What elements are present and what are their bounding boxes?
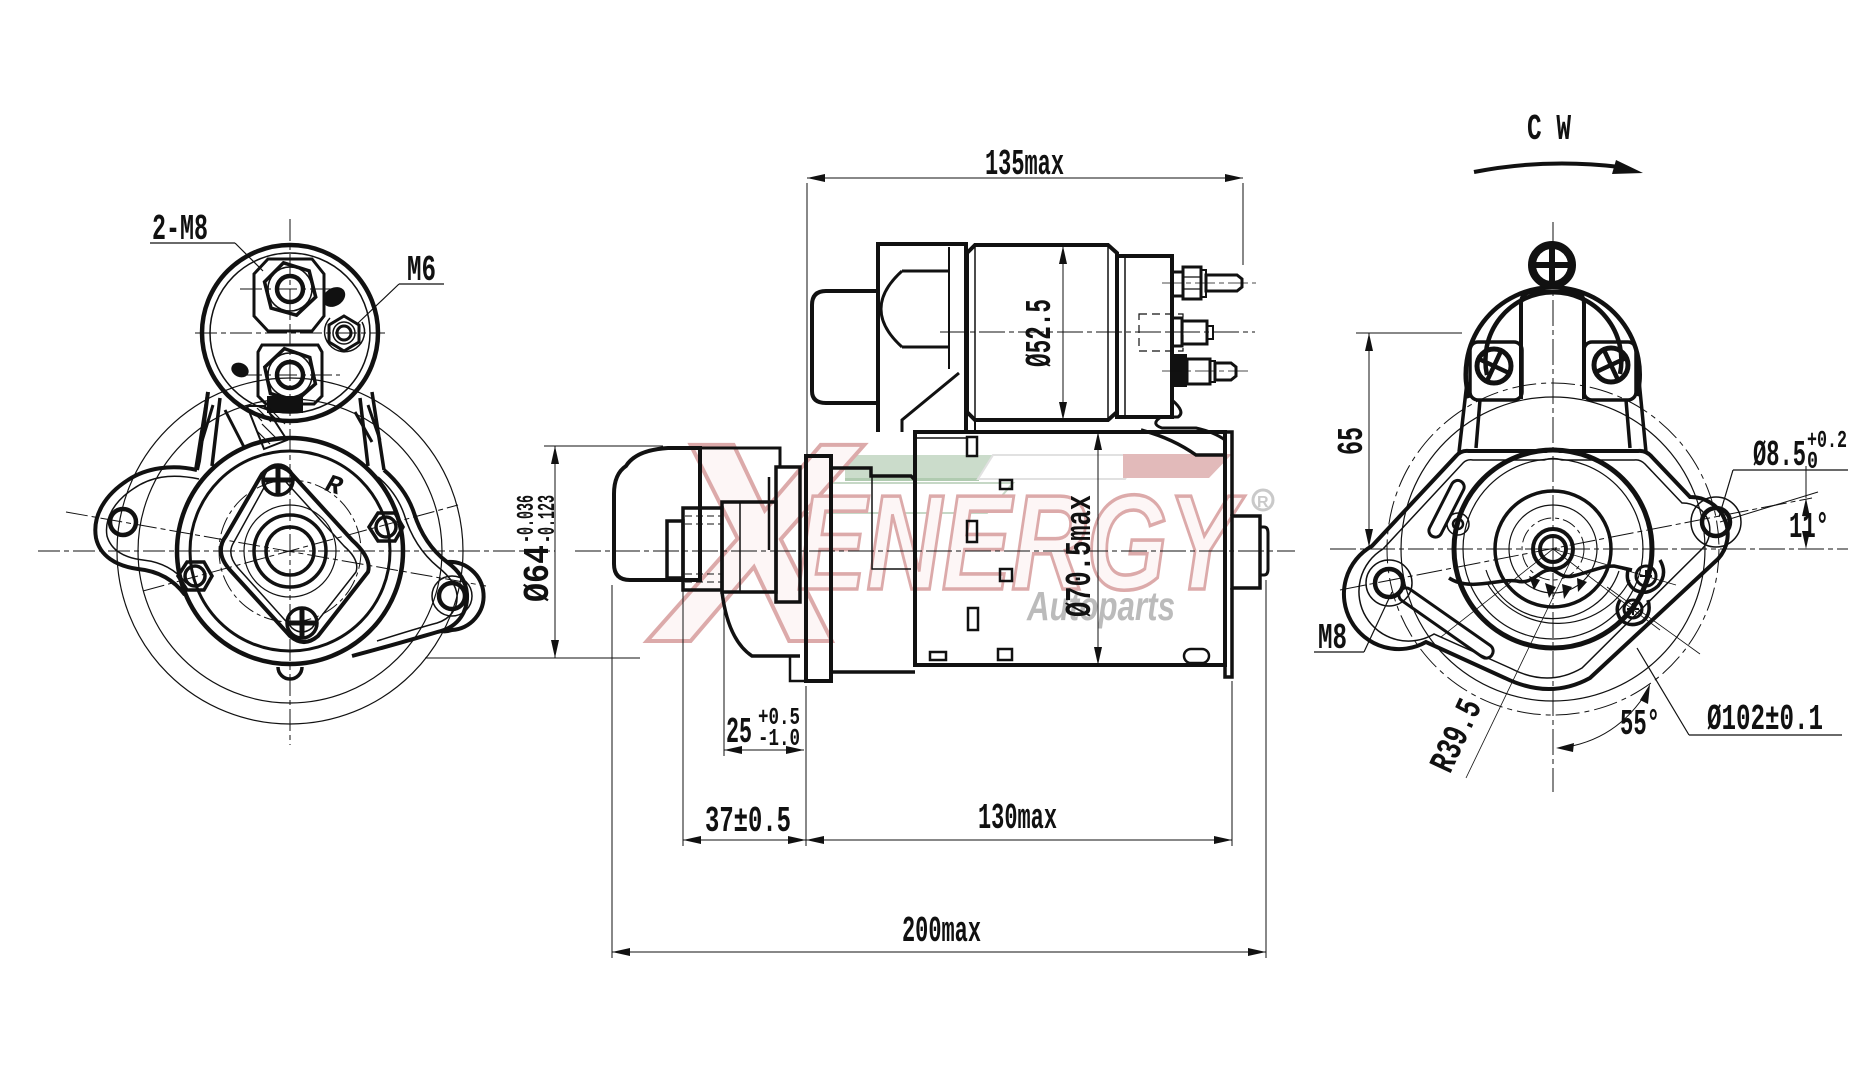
svg-text:Ø70.5max: Ø70.5max (1060, 495, 1101, 617)
svg-text:135max: 135max (985, 144, 1064, 185)
svg-text:37±0.5: 37±0.5 (705, 801, 791, 842)
svg-text:0: 0 (1807, 449, 1818, 476)
svg-text:ENERGY: ENERGY (797, 467, 1245, 618)
svg-text:Ø52.5: Ø52.5 (1020, 299, 1061, 367)
svg-text:Ø102±0.1: Ø102±0.1 (1707, 699, 1823, 740)
svg-text:2-M8: 2-M8 (152, 209, 208, 250)
svg-text:R: R (1257, 494, 1269, 511)
svg-text:Ø64: Ø64 (518, 545, 559, 602)
svg-text:C W: C W (1527, 109, 1571, 150)
svg-text:-0.123: -0.123 (535, 495, 562, 543)
svg-text:130max: 130max (978, 798, 1057, 839)
svg-text:55°: 55° (1620, 704, 1660, 745)
svg-text:200max: 200max (902, 911, 981, 952)
svg-text:65: 65 (1332, 427, 1373, 455)
svg-text:M8: M8 (1318, 618, 1347, 659)
svg-text:M6: M6 (407, 250, 436, 291)
